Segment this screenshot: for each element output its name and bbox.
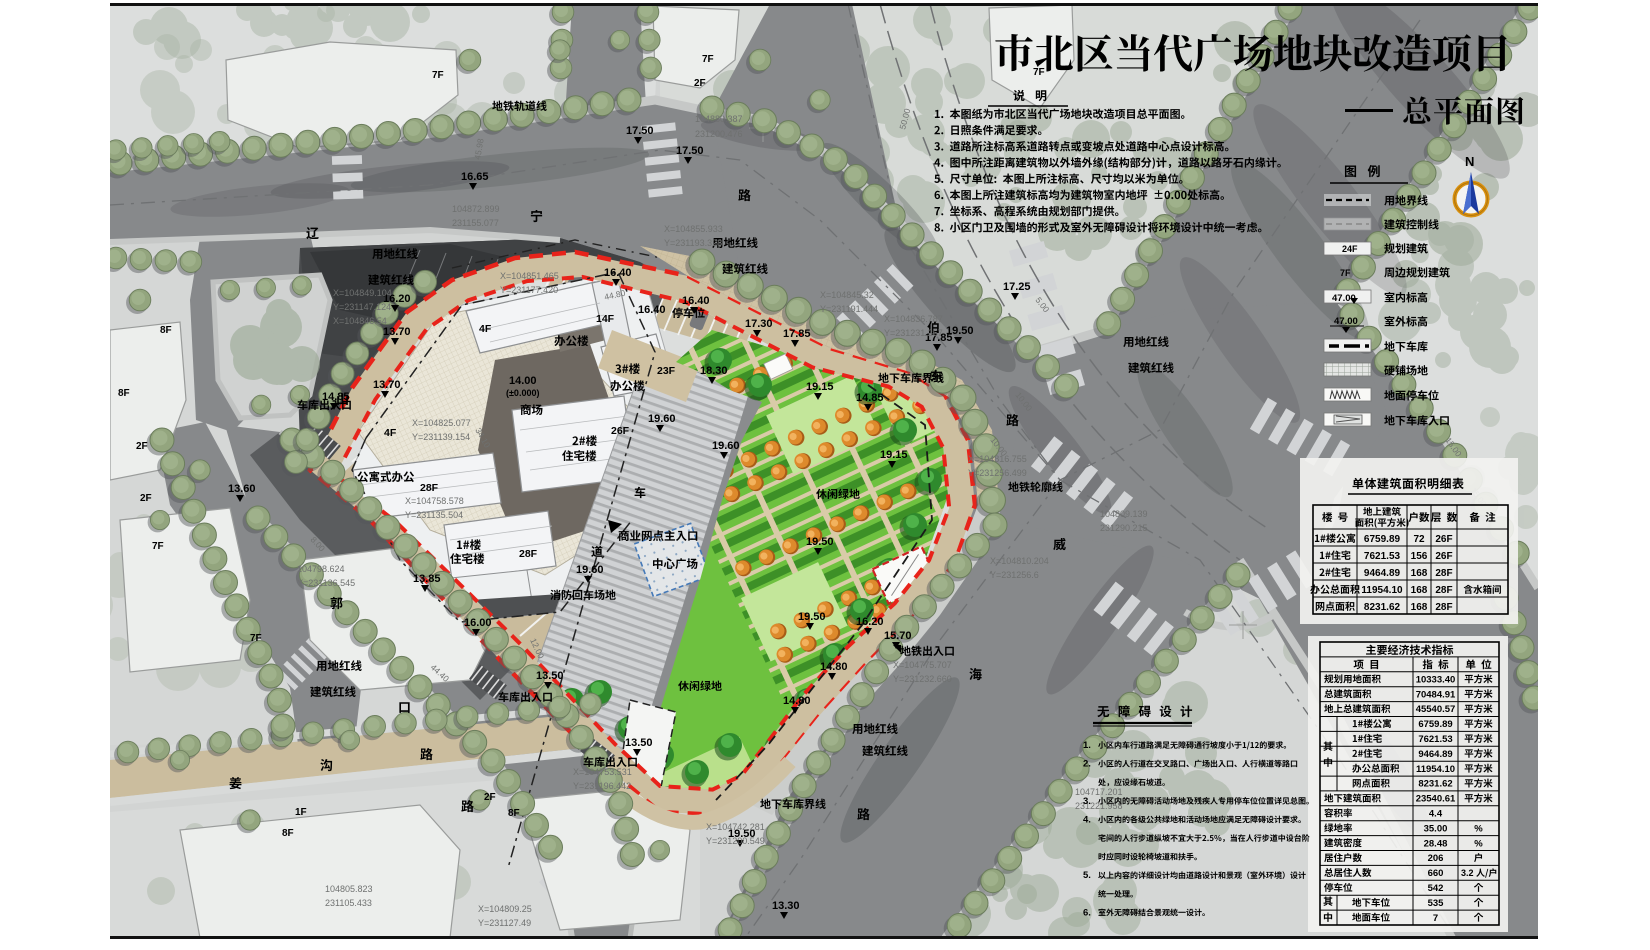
svg-text:8F: 8F [508, 808, 520, 819]
svg-text:6759.89: 6759.89 [1364, 534, 1401, 545]
svg-text:231200.476: 231200.476 [695, 129, 743, 139]
svg-text:4.: 4. [1083, 814, 1091, 825]
svg-text:2F: 2F [140, 493, 152, 504]
svg-text:14.80: 14.80 [820, 661, 848, 673]
svg-text:13.60: 13.60 [228, 483, 256, 495]
svg-text:%: % [1474, 838, 1483, 849]
svg-text:X=104816.755: X=104816.755 [968, 454, 1027, 464]
svg-text:17.50: 17.50 [676, 145, 704, 157]
svg-text:16.20: 16.20 [856, 616, 884, 628]
svg-text:6.: 6. [1083, 907, 1091, 918]
svg-text:Y=231191.444: Y=231191.444 [820, 304, 878, 314]
svg-text:9464.89: 9464.89 [1364, 568, 1401, 579]
svg-text:17.50: 17.50 [626, 125, 654, 137]
svg-text:104805.823: 104805.823 [325, 884, 373, 894]
svg-text:13.50: 13.50 [536, 670, 564, 682]
svg-text:(±0.000): (±0.000) [506, 388, 539, 398]
svg-text:4F: 4F [384, 427, 397, 439]
svg-text:8231.62: 8231.62 [1364, 602, 1401, 613]
svg-text:X=104836.787: X=104836.787 [884, 314, 943, 324]
svg-text:X=104758.578: X=104758.578 [405, 496, 464, 506]
svg-text:156: 156 [1411, 551, 1428, 562]
svg-text:16.00: 16.00 [464, 617, 492, 629]
svg-text:23540.61: 23540.61 [1416, 794, 1456, 805]
svg-text:Y=231196.442: Y=231196.442 [573, 781, 631, 791]
svg-text:X=104851.465: X=104851.465 [500, 271, 559, 281]
svg-text:14.00: 14.00 [509, 375, 537, 387]
svg-text:13.50: 13.50 [625, 737, 653, 749]
svg-text:14.80: 14.80 [783, 695, 811, 707]
svg-text:168: 168 [1411, 568, 1428, 579]
svg-text:%: % [1474, 823, 1483, 834]
svg-text:28F: 28F [519, 548, 538, 560]
svg-text:18.30: 18.30 [700, 365, 728, 377]
svg-text:Y=231177.420: Y=231177.420 [500, 285, 558, 295]
svg-text:47.00: 47.00 [1334, 316, 1358, 327]
svg-text:16.40: 16.40 [604, 267, 632, 279]
svg-text:28.48: 28.48 [1424, 838, 1448, 849]
svg-text:168: 168 [1411, 602, 1428, 613]
svg-text:206: 206 [1428, 853, 1444, 864]
svg-text:16.65: 16.65 [461, 171, 489, 183]
svg-text:X=104855.933: X=104855.933 [664, 224, 723, 234]
svg-text:N: N [1465, 154, 1474, 169]
svg-text:X=104753.531: X=104753.531 [573, 767, 632, 777]
svg-text:16.40: 16.40 [682, 295, 710, 307]
svg-text:26F: 26F [1435, 551, 1452, 562]
svg-text:7F: 7F [1340, 268, 1351, 278]
svg-text:168: 168 [1411, 585, 1428, 596]
svg-text:11954.10: 11954.10 [1416, 764, 1455, 775]
svg-text:1F: 1F [295, 807, 307, 818]
svg-text:26F: 26F [1435, 534, 1452, 545]
svg-text:Y=231139.154: Y=231139.154 [412, 432, 470, 442]
svg-text:28F: 28F [1435, 568, 1452, 579]
svg-text:Y=231232.660: Y=231232.660 [893, 674, 952, 684]
svg-text:660: 660 [1428, 868, 1444, 879]
svg-text:13.30: 13.30 [772, 900, 800, 912]
svg-text:104872.899: 104872.899 [452, 204, 500, 214]
svg-text:542: 542 [1428, 883, 1444, 894]
svg-text:Y=231135.504: Y=231135.504 [405, 510, 463, 520]
svg-text:19.15: 19.15 [880, 449, 908, 461]
svg-text:104798.624: 104798.624 [297, 564, 345, 574]
svg-text:7F: 7F [1033, 67, 1045, 78]
svg-text:28F: 28F [1435, 602, 1452, 613]
svg-text:8F: 8F [118, 388, 130, 399]
svg-text:17.25: 17.25 [1003, 281, 1031, 293]
svg-text:Y=231256.6: Y=231256.6 [990, 570, 1039, 580]
svg-text:19.50: 19.50 [798, 611, 826, 623]
svg-text:10333.40: 10333.40 [1416, 674, 1456, 685]
svg-text:8F: 8F [282, 828, 294, 839]
svg-text:2F: 2F [694, 78, 706, 89]
svg-text:7F: 7F [152, 541, 164, 552]
svg-text:2.: 2. [1083, 759, 1091, 770]
svg-text:14.85: 14.85 [856, 392, 884, 404]
svg-text:5.: 5. [1083, 870, 1091, 881]
svg-text:231105.433: 231105.433 [325, 898, 372, 908]
svg-text:7F: 7F [432, 70, 444, 81]
svg-text:Y=231200.549: Y=231200.549 [706, 836, 765, 846]
svg-text:104880.387: 104880.387 [695, 114, 743, 124]
svg-text:4.4: 4.4 [1429, 809, 1443, 820]
svg-text:Y=231256.499: Y=231256.499 [968, 468, 1027, 478]
svg-text:35.00: 35.00 [1424, 823, 1448, 834]
svg-text:72: 72 [1413, 534, 1425, 545]
svg-text:7F: 7F [250, 633, 262, 644]
svg-text:X=104825.077: X=104825.077 [412, 418, 471, 428]
svg-text:2F: 2F [484, 792, 496, 803]
svg-text:535: 535 [1428, 898, 1445, 909]
svg-text:7621.53: 7621.53 [1364, 551, 1401, 562]
svg-text:Y=231231.267: Y=231231.267 [884, 328, 943, 338]
svg-text:X=104849.104: X=104849.104 [333, 288, 392, 298]
svg-text:19.50: 19.50 [806, 536, 834, 548]
svg-text:X=104809.25: X=104809.25 [478, 904, 532, 914]
svg-text:X=104810.204: X=104810.204 [990, 556, 1049, 566]
svg-text:X=104846.54: X=104846.54 [333, 316, 387, 326]
svg-text:13.70: 13.70 [383, 326, 411, 338]
svg-text:19.15: 19.15 [806, 381, 834, 393]
svg-text:14.85: 14.85 [322, 391, 350, 403]
svg-text:13.70: 13.70 [373, 379, 401, 391]
svg-text:3.: 3. [1083, 796, 1091, 807]
svg-text:3.2: 3.2 [1461, 868, 1474, 878]
svg-text:17.30: 17.30 [745, 318, 773, 330]
svg-text:6759.89: 6759.89 [1418, 719, 1452, 730]
svg-text:19.60: 19.60 [648, 413, 676, 425]
svg-text:24F: 24F [1342, 244, 1358, 254]
svg-text:9464.89: 9464.89 [1418, 749, 1452, 760]
svg-text:2F: 2F [136, 441, 148, 452]
svg-text:7621.53: 7621.53 [1418, 734, 1452, 745]
svg-text:4F: 4F [479, 323, 492, 335]
svg-text:70484.91: 70484.91 [1416, 689, 1456, 700]
svg-text:X=104845.32: X=104845.32 [820, 290, 874, 300]
svg-text:16.40: 16.40 [638, 304, 666, 316]
svg-text:8F: 8F [160, 325, 172, 336]
svg-text:28F: 28F [1435, 585, 1452, 596]
svg-text:14F: 14F [596, 313, 615, 325]
svg-text:X=104775.707: X=104775.707 [893, 660, 952, 670]
svg-text:Y=231147.124: Y=231147.124 [333, 302, 391, 312]
svg-text:X=104742.281: X=104742.281 [706, 822, 765, 832]
svg-text:Y=231136.545: Y=231136.545 [297, 578, 355, 588]
svg-text:231290.215: 231290.215 [1100, 523, 1148, 533]
svg-text:Y=231127.49: Y=231127.49 [478, 918, 531, 928]
svg-text:13.85: 13.85 [413, 573, 441, 585]
svg-text:8231.62: 8231.62 [1418, 779, 1452, 790]
svg-text:1.: 1. [1083, 740, 1091, 751]
svg-text:17.85: 17.85 [783, 328, 811, 340]
svg-text:231155.077: 231155.077 [452, 218, 499, 228]
svg-text:45540.57: 45540.57 [1416, 704, 1456, 715]
svg-text:7F: 7F [702, 54, 714, 65]
svg-text:19.60: 19.60 [576, 564, 604, 576]
svg-text:104809.139: 104809.139 [1100, 509, 1148, 519]
svg-text:19.50: 19.50 [946, 325, 974, 337]
svg-text:26F: 26F [611, 425, 630, 437]
svg-text:28F: 28F [420, 482, 439, 494]
svg-text:Y=231193.328: Y=231193.328 [664, 238, 722, 248]
svg-text:11954.10: 11954.10 [1361, 585, 1403, 596]
svg-text:15.70: 15.70 [884, 630, 912, 642]
svg-text:19.60: 19.60 [712, 440, 740, 452]
svg-text:23F: 23F [657, 365, 676, 377]
svg-text:7: 7 [1433, 913, 1438, 924]
